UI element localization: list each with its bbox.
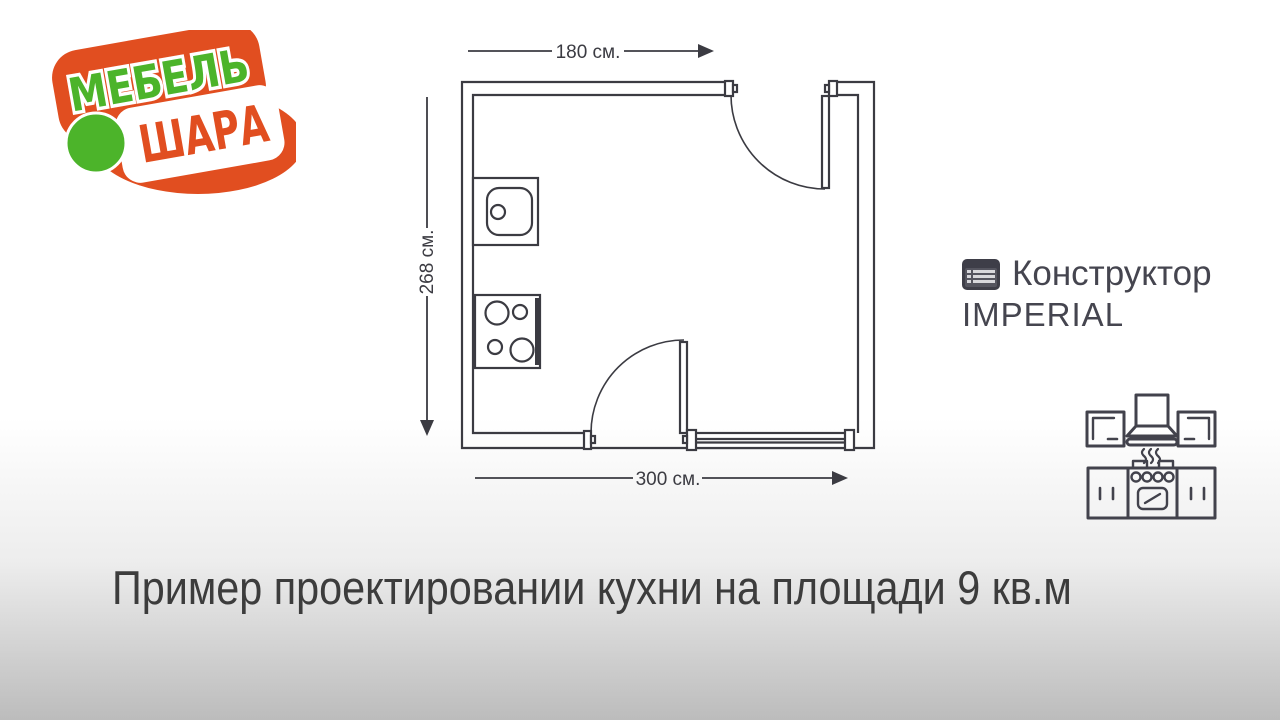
wall-cabinet-right	[1178, 412, 1215, 446]
stove-fixture	[475, 295, 541, 368]
cabinet-handles-right	[1191, 488, 1204, 499]
door-top-caps	[725, 81, 837, 96]
dim-top-label: 180 см.	[556, 42, 621, 63]
door-leaf	[822, 96, 829, 188]
dimension-left: 268 см.	[417, 97, 438, 436]
door-bottom	[591, 340, 687, 433]
walls-outer	[462, 82, 874, 448]
dimension-bottom: 300 см.	[475, 469, 848, 490]
slide-caption: Пример проектировании кухни на площади 9…	[112, 562, 1072, 614]
tool-title: Конструктор	[1012, 254, 1212, 294]
dim-bottom-label: 300 см.	[636, 469, 701, 490]
cabinet-handles-left	[1100, 488, 1113, 499]
range-hood	[1127, 395, 1177, 445]
dim-left-label: 268 см.	[417, 230, 438, 295]
door-swing-arc	[731, 95, 825, 189]
floor-plan-drawing: 180 см. 268 см. 300 см.	[400, 25, 890, 495]
door-leaf	[680, 342, 687, 433]
constructor-badge: Конструктор IMPERIAL	[958, 252, 1258, 342]
mebel-shara-logo: МЕБЕЛЬ ШАРА	[46, 30, 296, 200]
walls-inner	[473, 95, 858, 433]
wall-cabinet-left	[1087, 412, 1124, 446]
constructor-list-icon	[961, 258, 1001, 291]
arrow-right-icon	[832, 471, 848, 485]
arrow-right-icon	[698, 44, 714, 58]
logo-graphic: МЕБЕЛЬ ШАРА	[46, 30, 296, 200]
door-top	[731, 95, 829, 189]
door-bottom-caps	[584, 431, 595, 449]
tool-subtitle: IMPERIAL	[962, 296, 1124, 334]
oven-handle	[1145, 494, 1160, 503]
sink-fixture	[473, 178, 538, 245]
window-bottom	[683, 430, 854, 450]
arrow-down-icon	[420, 420, 434, 436]
kitchen-set-icon	[1083, 390, 1219, 522]
dimension-top: 180 см.	[468, 42, 714, 63]
door-swing-arc	[591, 340, 684, 433]
kitchen-floor-plan: 180 см. 268 см. 300 см.	[400, 25, 890, 495]
